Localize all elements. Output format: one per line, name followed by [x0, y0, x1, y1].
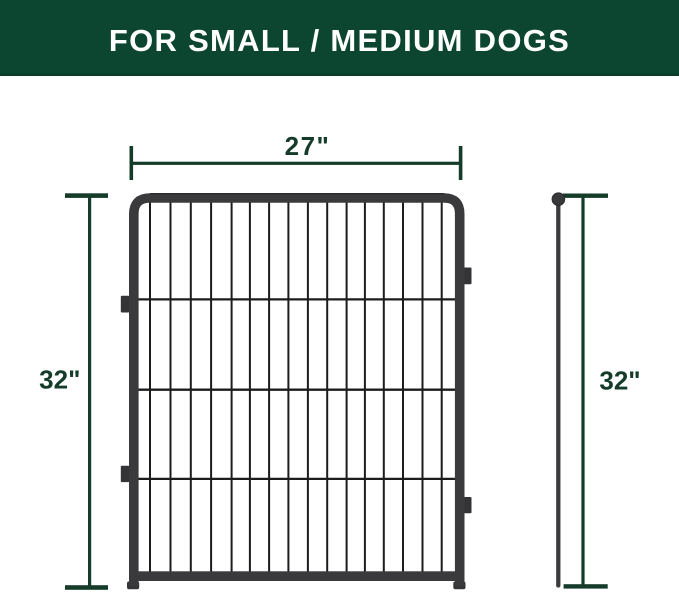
svg-text:27": 27": [285, 131, 331, 161]
svg-text:32": 32": [39, 365, 80, 395]
svg-text:32": 32": [599, 366, 640, 396]
